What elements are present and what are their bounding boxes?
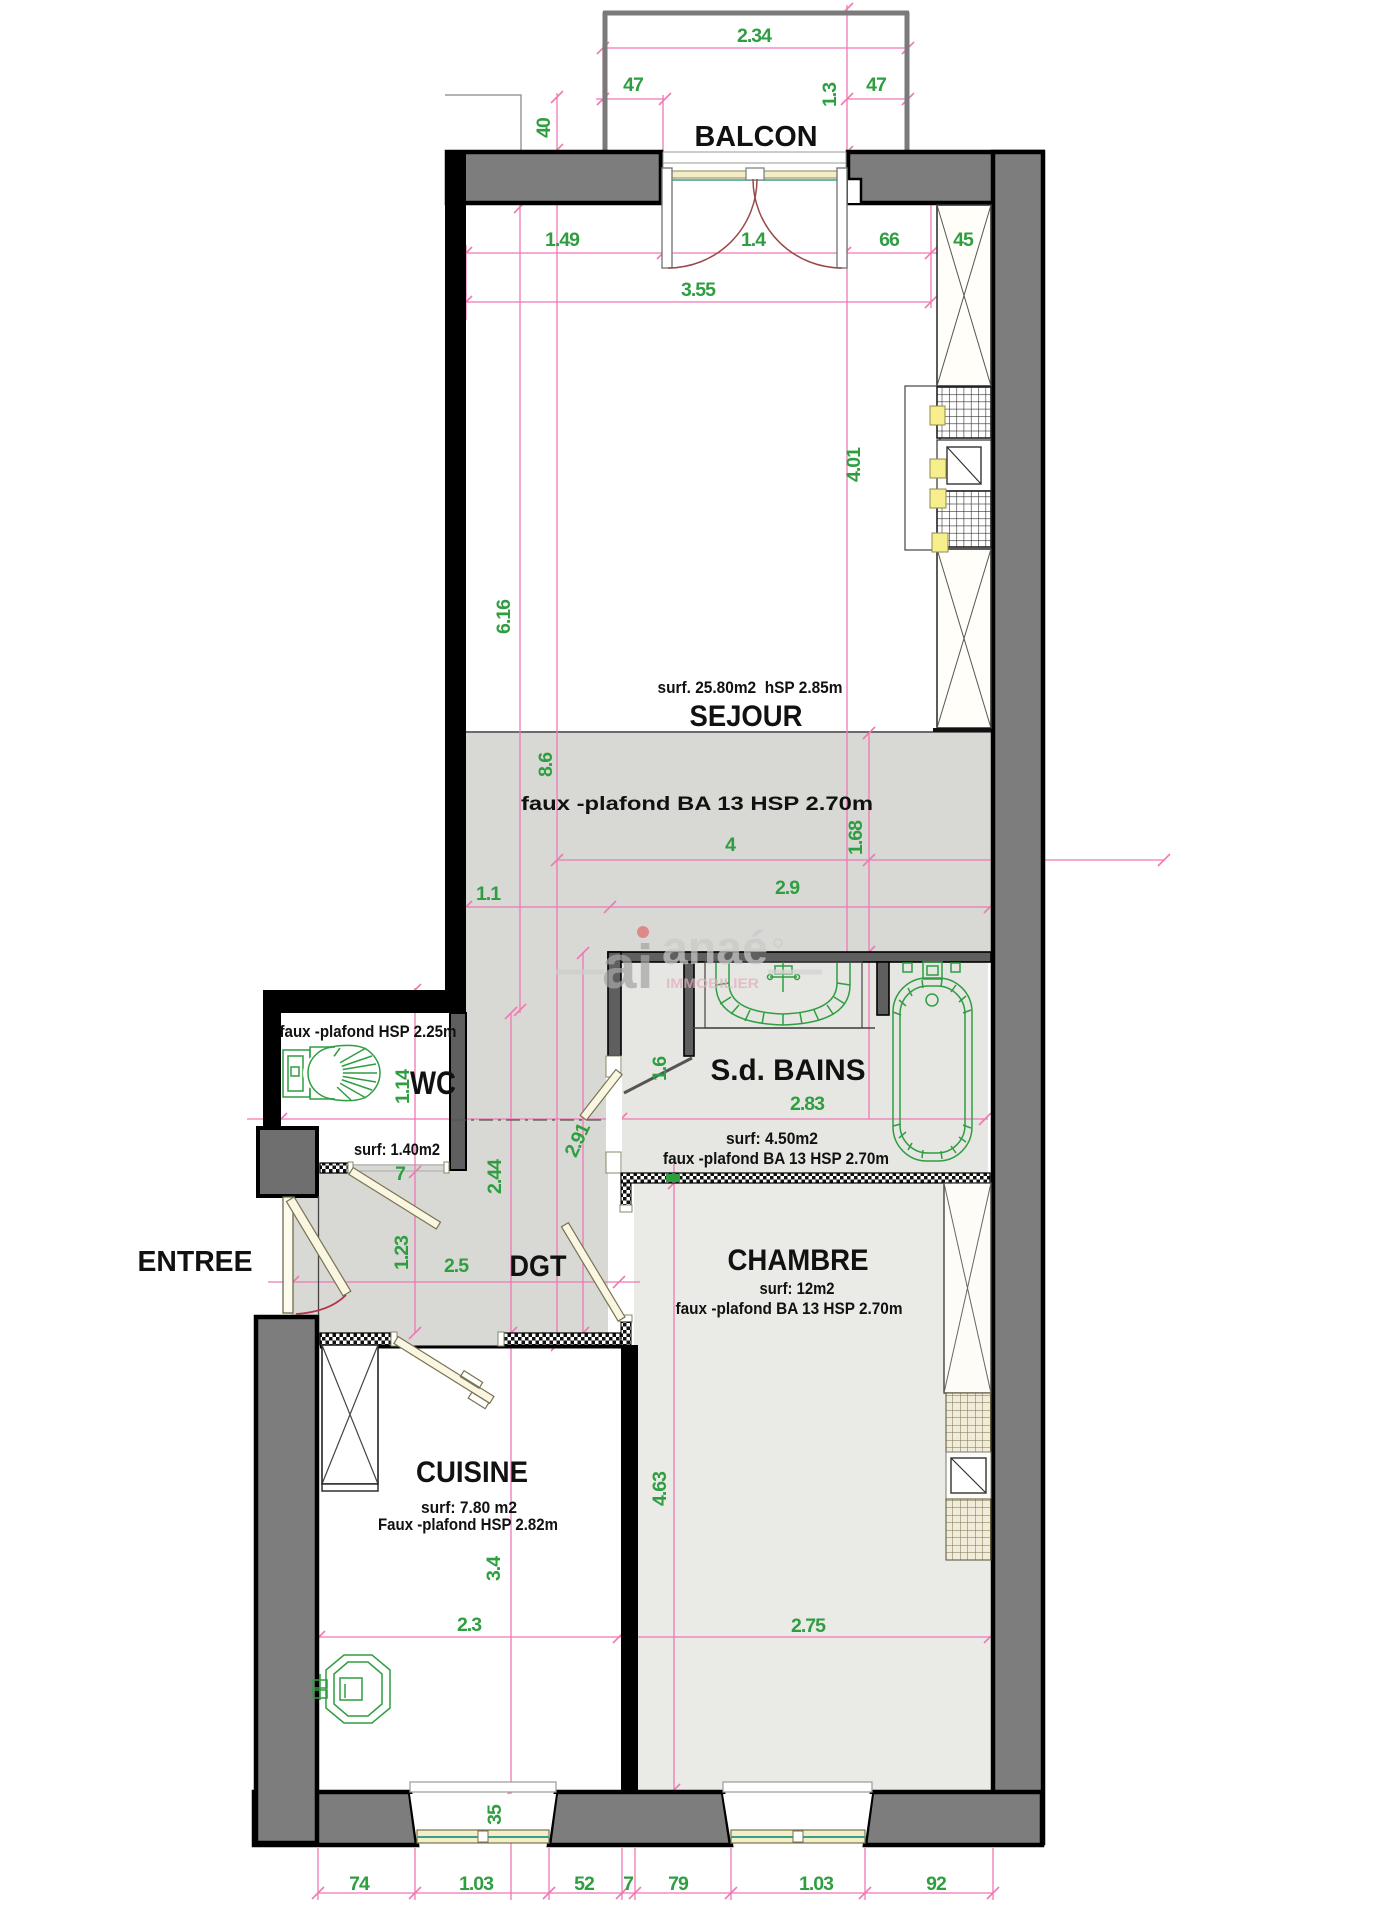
svg-text:S.d. BAINS: S.d. BAINS bbox=[711, 1054, 866, 1087]
svg-text:47: 47 bbox=[623, 74, 643, 96]
svg-text:35: 35 bbox=[484, 1804, 506, 1825]
svg-text:74: 74 bbox=[349, 1873, 370, 1895]
svg-text:CUISINE: CUISINE bbox=[416, 1456, 528, 1489]
svg-text:6.16: 6.16 bbox=[493, 599, 515, 634]
svg-text:faux -plafond HSP 2.25m: faux -plafond HSP 2.25m bbox=[280, 1022, 457, 1041]
svg-text:2.34: 2.34 bbox=[737, 25, 772, 47]
svg-text:2.9: 2.9 bbox=[775, 877, 800, 899]
svg-text:3.4: 3.4 bbox=[483, 1556, 505, 1581]
svg-text:2.3: 2.3 bbox=[457, 1614, 482, 1636]
svg-text:7: 7 bbox=[623, 1873, 633, 1895]
svg-text:1.49: 1.49 bbox=[545, 229, 580, 251]
svg-text:1.03: 1.03 bbox=[459, 1873, 494, 1895]
svg-text:1.23: 1.23 bbox=[391, 1235, 413, 1270]
svg-text:DGT: DGT bbox=[510, 1250, 567, 1283]
svg-text:surf: 4.50m2: surf: 4.50m2 bbox=[726, 1129, 818, 1148]
svg-text:4.63: 4.63 bbox=[649, 1471, 671, 1506]
svg-text:WC: WC bbox=[410, 1065, 456, 1101]
svg-text:7: 7 bbox=[395, 1163, 405, 1185]
svg-text:8.6: 8.6 bbox=[535, 752, 557, 777]
svg-text:SEJOUR: SEJOUR bbox=[690, 700, 803, 733]
svg-text:IMMOBILIER: IMMOBILIER bbox=[666, 976, 759, 991]
svg-text:ENTREE: ENTREE bbox=[138, 1246, 253, 1278]
svg-text:3.55: 3.55 bbox=[681, 279, 716, 301]
svg-text:45: 45 bbox=[953, 229, 974, 251]
svg-text:Faux -plafond HSP 2.82m: Faux -plafond HSP 2.82m bbox=[378, 1516, 558, 1534]
svg-text:2.75: 2.75 bbox=[791, 1615, 826, 1637]
svg-text:BALCON: BALCON bbox=[695, 121, 818, 153]
svg-text:66: 66 bbox=[879, 229, 900, 251]
svg-text:4: 4 bbox=[725, 834, 736, 856]
svg-text:1.6: 1.6 bbox=[649, 1056, 671, 1081]
svg-text:47: 47 bbox=[866, 74, 886, 96]
svg-text:faux -plafond BA 13 HSP 2.70m: faux -plafond BA 13 HSP 2.70m bbox=[676, 1300, 903, 1318]
svg-text:52: 52 bbox=[574, 1873, 595, 1895]
svg-text:anaé: anaé bbox=[662, 921, 768, 974]
svg-text:2.5: 2.5 bbox=[444, 1255, 469, 1277]
svg-text:1.03: 1.03 bbox=[799, 1873, 834, 1895]
svg-text:surf: 1.40m2: surf: 1.40m2 bbox=[354, 1140, 440, 1159]
svg-text:1.14: 1.14 bbox=[392, 1069, 414, 1104]
svg-text:79: 79 bbox=[668, 1873, 689, 1895]
svg-text:2.44: 2.44 bbox=[484, 1159, 506, 1194]
svg-text:92: 92 bbox=[926, 1873, 947, 1895]
svg-text:1.3: 1.3 bbox=[819, 82, 841, 107]
svg-text:CHAMBRE: CHAMBRE bbox=[728, 1244, 869, 1277]
svg-text:1.68: 1.68 bbox=[845, 820, 867, 855]
svg-text:4.01: 4.01 bbox=[843, 447, 865, 482]
svg-text:surf. 25.80m2 hSP 2.85m: surf. 25.80m2 hSP 2.85m bbox=[658, 678, 843, 697]
svg-text:2.83: 2.83 bbox=[790, 1093, 825, 1115]
svg-text:faux -plafond BA 13 HSP 2.70m: faux -plafond BA 13 HSP 2.70m bbox=[663, 1149, 889, 1168]
svg-text:surf: 12m2: surf: 12m2 bbox=[760, 1280, 835, 1298]
svg-text:1.1: 1.1 bbox=[476, 883, 501, 905]
svg-text:faux -plafond BA 13 HSP 2.70m: faux -plafond BA 13 HSP 2.70m bbox=[521, 793, 873, 815]
svg-text:40: 40 bbox=[533, 117, 555, 138]
svg-text:ai: ai bbox=[602, 933, 654, 1002]
svg-text:surf: 7.80 m2: surf: 7.80 m2 bbox=[421, 1499, 517, 1517]
svg-text:1.4: 1.4 bbox=[741, 229, 766, 251]
